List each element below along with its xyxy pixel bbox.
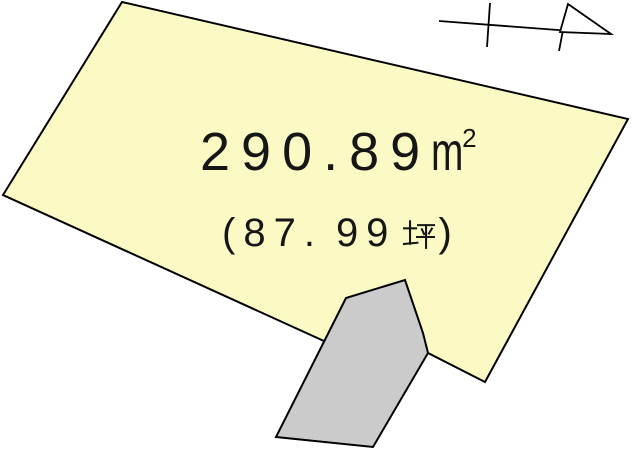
area-label-tsubo: (87.99 ) [222,213,460,253]
area-sqm-unit: m [431,125,455,179]
tsubo-prefix: (87. [222,211,323,255]
area-sqm-exponent: 2 [462,123,476,153]
area-sqm-value: 290.89 [200,122,431,182]
tsubo-close-paren: ) [438,211,459,255]
tsubo-digits: 99 [336,211,397,255]
land-plot-diagram: 290.89m2 (87.99 ) [0,0,632,451]
tsubo-unit-glyph [403,216,435,249]
land-parcel-shape [3,2,628,382]
area-label-sqm: 290.89m2 [200,125,477,188]
north-arrow-icon [439,3,611,51]
